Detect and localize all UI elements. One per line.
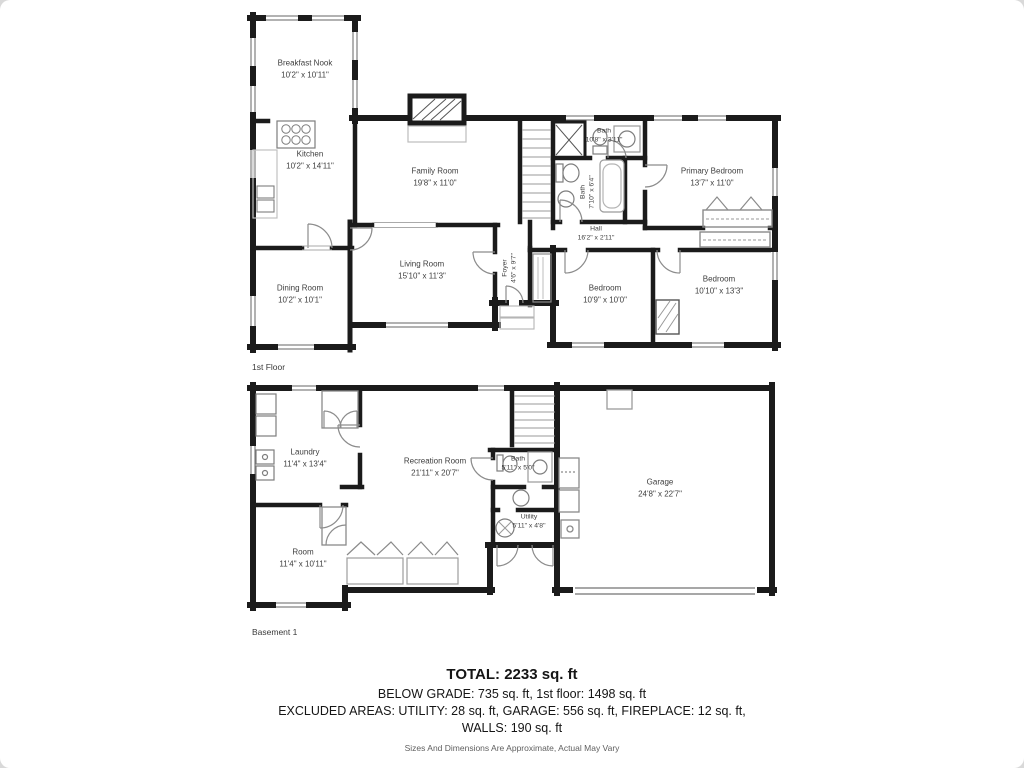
room-label-kitchen: Kitchen 10'2" x 14'11"	[286, 149, 334, 172]
room-dims: 24'8" x 22'7"	[638, 488, 682, 500]
room-name: Hall	[578, 226, 615, 235]
room-label-utility: Utility 5'11" x 4'8"	[513, 514, 546, 531]
summary-disclaimer: Sizes And Dimensions Are Approximate, Ac…	[0, 743, 1024, 753]
room-label-recreation-room: Recreation Room 21'11" x 20'7"	[404, 456, 466, 479]
floor-plan-page: Breakfast Nook 10'2" x 10'11" Kitchen 10…	[0, 0, 1024, 768]
fireplace-icon	[408, 96, 466, 142]
room-dims: 5'11" x 4'8"	[513, 522, 546, 531]
room-dims: 10'9" x 10'0"	[583, 294, 627, 306]
room-name: Foyer	[502, 253, 511, 283]
room-name: Primary Bedroom	[681, 166, 743, 178]
room-name: Bath	[580, 175, 589, 209]
room-label-garage: Garage 24'8" x 22'7"	[638, 477, 682, 500]
room-label-bedroom-right: Bedroom 10'10" x 13'3"	[695, 274, 743, 297]
room-dims: 13'7" x 11'0"	[681, 177, 743, 189]
first-floor-caption: 1st Floor	[252, 362, 285, 372]
room-name: Room	[279, 547, 326, 559]
summary-walls: WALLS: 190 sq. ft	[0, 721, 1024, 735]
basement-windows	[251, 386, 504, 607]
room-dims: 10'8" x 3'11"	[586, 136, 623, 145]
room-label-bath-top: Bath 10'8" x 3'11"	[586, 128, 623, 145]
room-label-primary-bedroom: Primary Bedroom 13'7" x 11'0"	[681, 166, 743, 189]
room-label-foyer: Foyer 4'6" x 9'7"	[502, 253, 519, 283]
room-dims: 10'2" x 10'11"	[278, 69, 333, 81]
room-name: Dining Room	[277, 283, 323, 295]
room-dims: 15'10" x 11'3"	[398, 270, 446, 282]
room-dims: 21'11" x 20'7"	[404, 467, 466, 479]
room-dims: 10'10" x 13'3"	[695, 285, 743, 297]
garage-fixtures	[559, 390, 632, 538]
floor-plan-drawing	[0, 0, 1024, 768]
room-label-laundry: Laundry 11'4" x 13'4"	[283, 447, 326, 470]
room-name: Utility	[513, 514, 546, 523]
room-dims: 4'6" x 9'7"	[510, 253, 519, 283]
laundry-fixtures	[256, 394, 276, 480]
room-name: Family Room	[411, 166, 458, 178]
room-dims: 11'4" x 10'11"	[279, 558, 326, 570]
room-dims: 19'8" x 11'0"	[411, 177, 458, 189]
room-label-dining-room: Dining Room 10'2" x 10'1"	[277, 283, 323, 306]
summary-below-grade: BELOW GRADE: 735 sq. ft, 1st floor: 1498…	[0, 687, 1024, 701]
summary-excluded-areas: EXCLUDED AREAS: UTILITY: 28 sq. ft, GARA…	[0, 704, 1024, 718]
room-label-breakfast-nook: Breakfast Nook 10'2" x 10'11"	[278, 58, 333, 81]
room-name: Kitchen	[286, 149, 334, 161]
room-dims: 10'2" x 14'11"	[286, 160, 334, 172]
room-label-family-room: Family Room 19'8" x 11'0"	[411, 166, 458, 189]
room-dims: 16'2" x 2'11"	[578, 234, 615, 243]
room-label-living-room: Living Room 15'10" x 11'3"	[398, 259, 446, 282]
room-name: Breakfast Nook	[278, 58, 333, 70]
room-label-basement-bath: Bath 5'11" x 5'0"	[502, 456, 535, 473]
room-name: Laundry	[283, 447, 326, 459]
room-dims: 10'2" x 10'1"	[277, 294, 323, 306]
basement-caption: Basement 1	[252, 627, 297, 637]
room-label-hall: Hall 16'2" x 2'11"	[578, 226, 615, 243]
room-dims: 5'11" x 5'0"	[502, 464, 535, 473]
room-name: Bath	[502, 456, 535, 465]
room-label-basement-room: Room 11'4" x 10'11"	[279, 547, 326, 570]
summary-total: TOTAL: 2233 sq. ft	[0, 666, 1024, 683]
room-name: Living Room	[398, 259, 446, 271]
room-dims: 7'10" x 6'4"	[588, 175, 597, 209]
garage-door	[573, 584, 757, 596]
room-name: Bedroom	[695, 274, 743, 286]
room-label-bath-side: Bath 7'10" x 6'4"	[580, 175, 597, 209]
stairs-first-floor	[522, 130, 551, 218]
room-name: Bedroom	[583, 283, 627, 295]
room-name: Bath	[586, 128, 623, 137]
room-name: Garage	[638, 477, 682, 489]
room-label-bedroom-mid: Bedroom 10'9" x 10'0"	[583, 283, 627, 306]
room-dims: 11'4" x 13'4"	[283, 458, 326, 470]
stairs-basement	[514, 396, 555, 443]
room-name: Recreation Room	[404, 456, 466, 468]
